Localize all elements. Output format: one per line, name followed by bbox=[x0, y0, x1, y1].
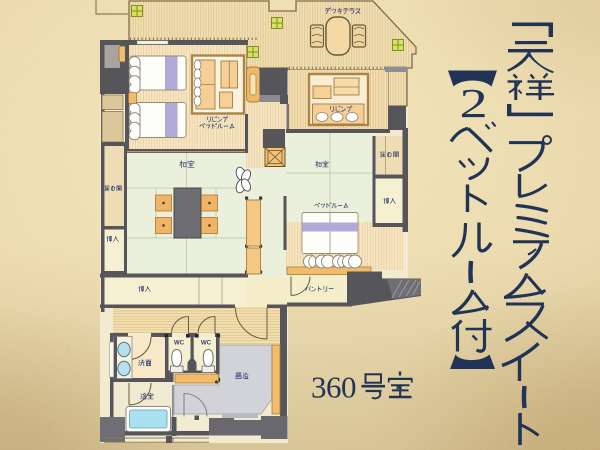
svg-text:360: 360 bbox=[311, 369, 356, 404]
svg-text:2: 2 bbox=[460, 80, 488, 126]
svg-text:WC: WC bbox=[174, 340, 185, 347]
svg-text:WC: WC bbox=[201, 340, 212, 347]
